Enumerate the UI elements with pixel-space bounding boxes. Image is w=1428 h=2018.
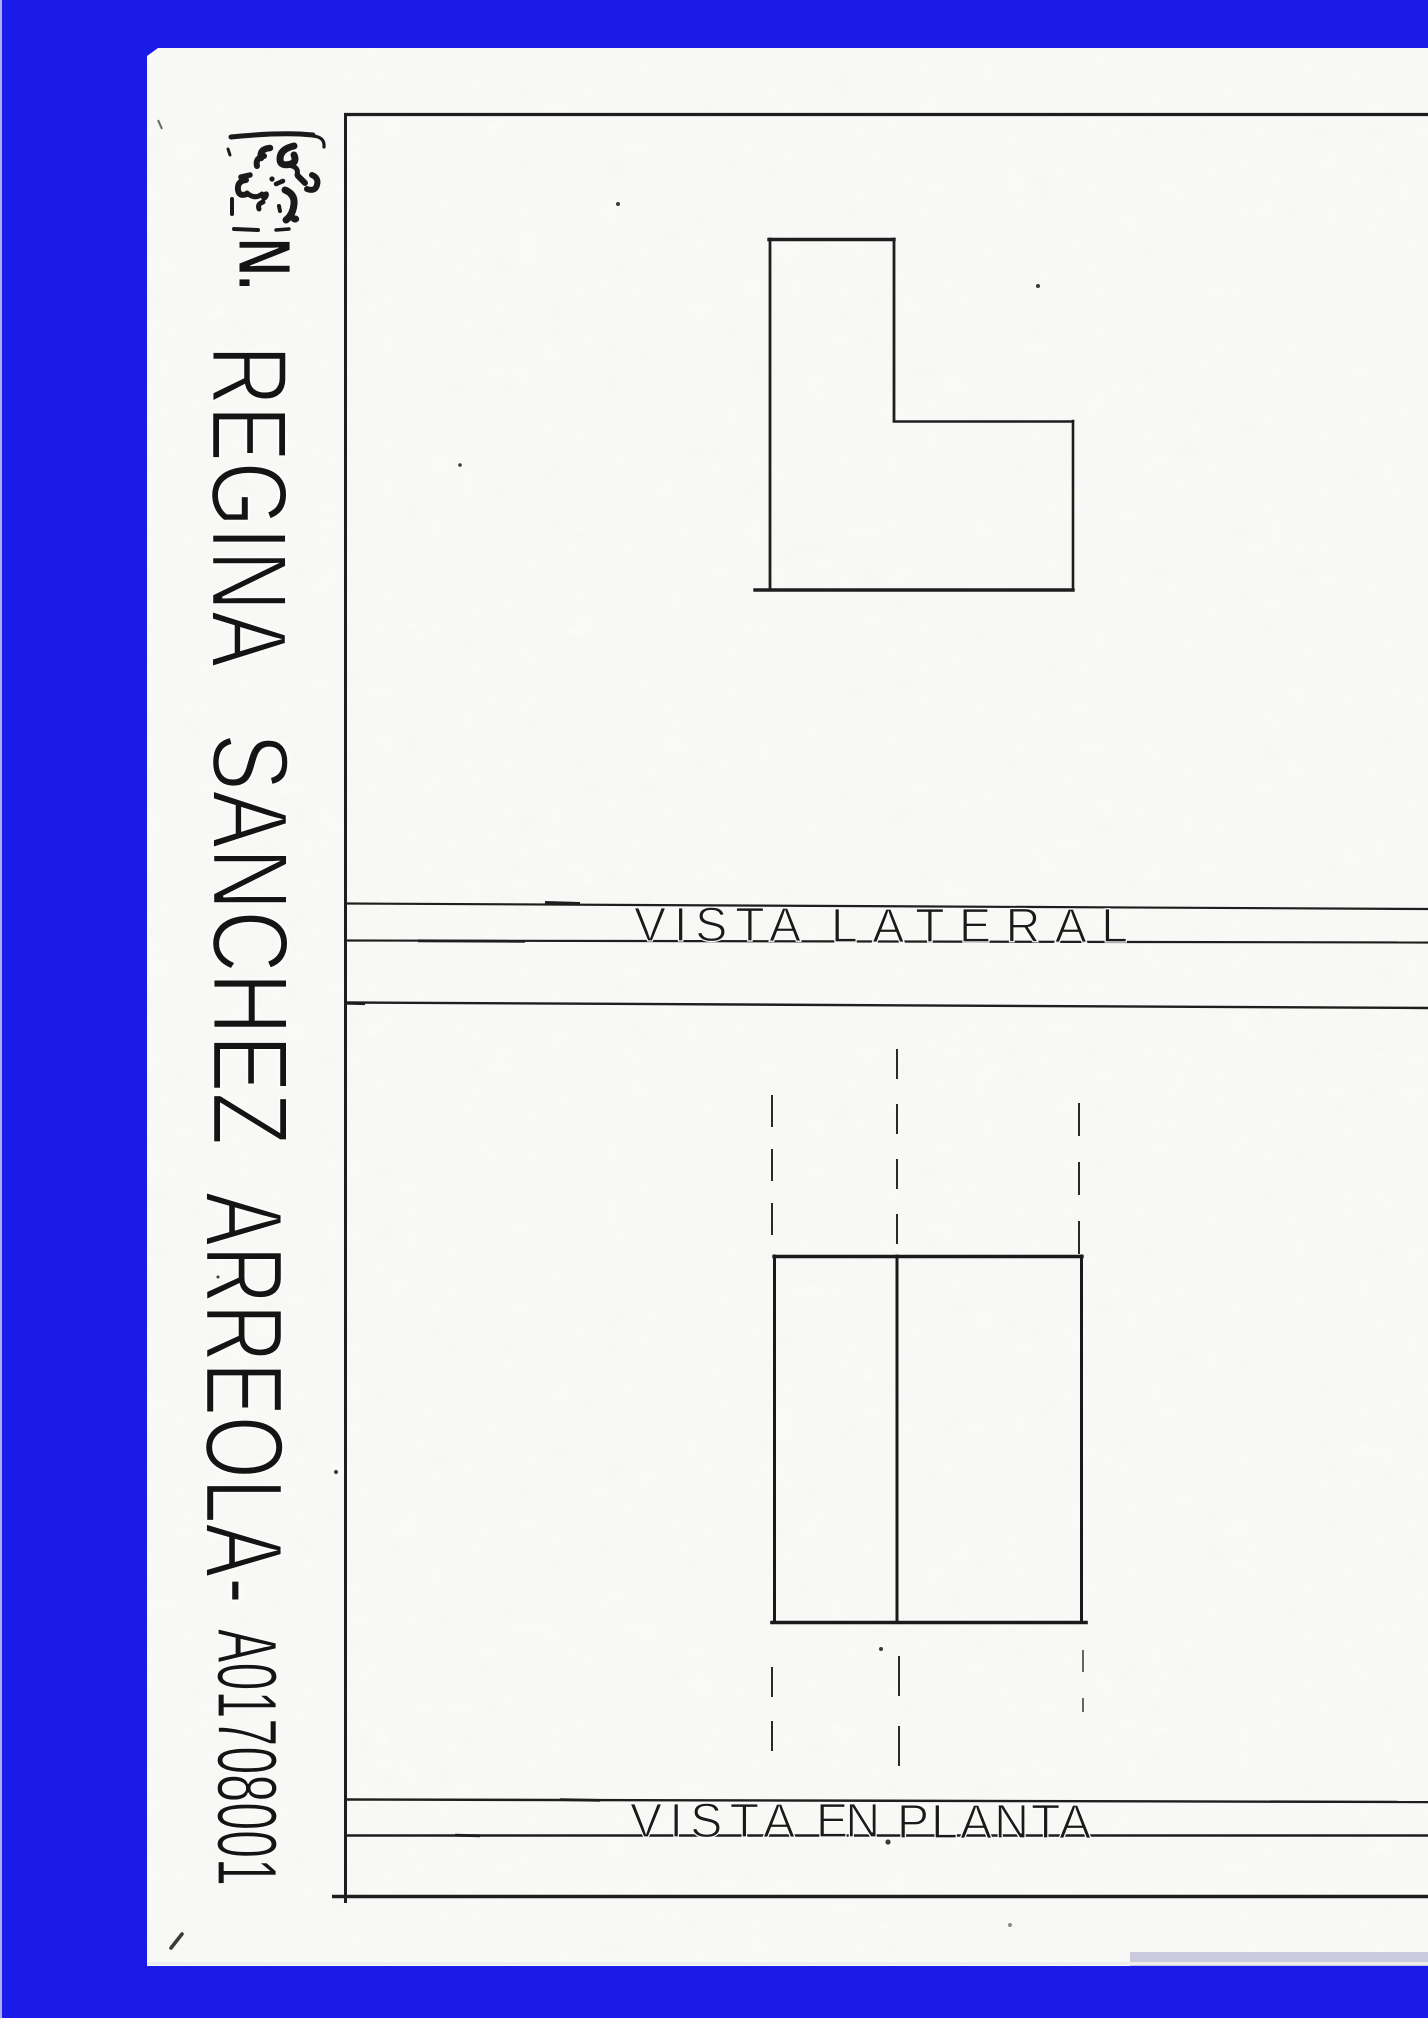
svg-text:N.: N. <box>223 238 306 290</box>
svg-text:REGINA: REGINA <box>189 345 310 667</box>
svg-text:VISTA: VISTA <box>634 899 801 952</box>
svg-text:A01708001: A01708001 <box>200 1629 294 1886</box>
svg-text:ARREOLA-: ARREOLA- <box>182 1192 305 1604</box>
svg-text:SANCHEZ: SANCHEZ <box>190 733 311 1145</box>
svg-text:EN: EN <box>816 1795 880 1848</box>
svg-text:PLANTA: PLANTA <box>897 1796 1091 1849</box>
svg-text:LATERAL: LATERAL <box>831 900 1128 953</box>
svg-text:VISTA: VISTA <box>630 1795 795 1848</box>
